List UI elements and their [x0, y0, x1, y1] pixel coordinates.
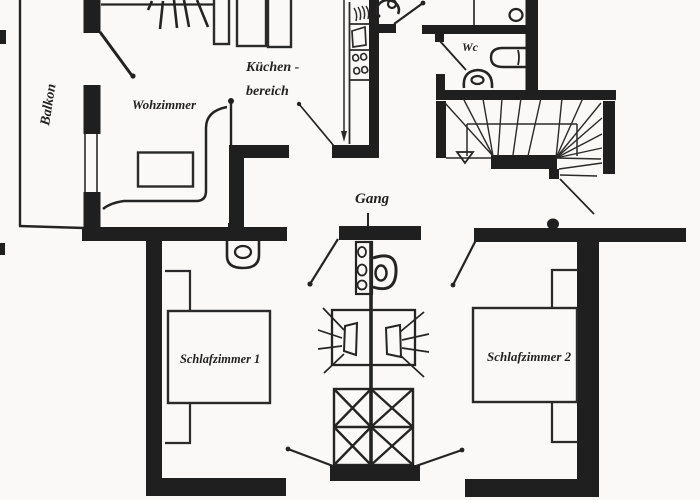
svg-text:Schlafzimmer 2: Schlafzimmer 2: [487, 349, 572, 364]
svg-text:Gang: Gang: [355, 191, 390, 207]
svg-text:Wc: Wc: [462, 40, 479, 54]
svg-text:Wohzimmer: Wohzimmer: [132, 97, 197, 112]
svg-text:bereich: bereich: [246, 84, 289, 99]
svg-text:Schlafzimmer 1: Schlafzimmer 1: [180, 352, 260, 366]
svg-text:Küchen -: Küchen -: [245, 60, 300, 75]
